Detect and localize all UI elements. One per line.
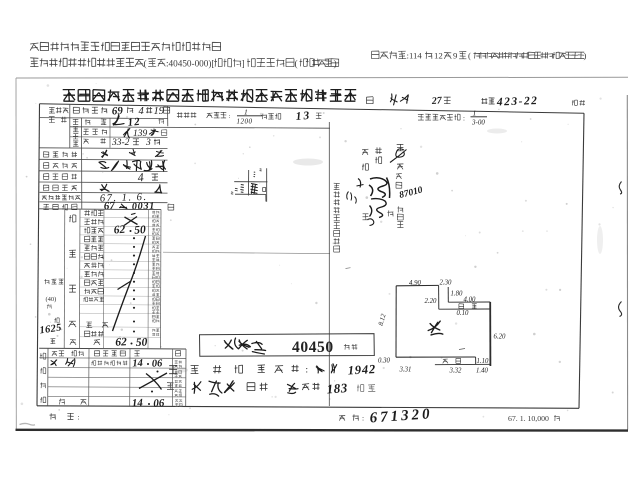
svg-text::: : xyxy=(362,414,364,423)
svg-text:14: 14 xyxy=(132,397,144,410)
svg-text:1.40: 1.40 xyxy=(476,368,488,375)
svg-text:62: 62 xyxy=(113,224,126,237)
svg-text:13: 13 xyxy=(295,110,311,123)
svg-text:4.00: 4.00 xyxy=(464,296,476,303)
svg-text::: : xyxy=(306,365,309,375)
svg-text:0031: 0031 xyxy=(132,201,156,213)
svg-text::: : xyxy=(463,114,465,122)
svg-text::114: :114 xyxy=(407,50,423,60)
svg-text:9: 9 xyxy=(453,50,458,60)
svg-text:(: ( xyxy=(468,50,471,60)
svg-text:1: 1 xyxy=(473,109,477,118)
svg-text:33-2: 33-2 xyxy=(111,138,130,148)
svg-text::: : xyxy=(78,413,80,422)
svg-text:1.10: 1.10 xyxy=(477,358,489,365)
svg-text:1: 1 xyxy=(244,108,248,117)
svg-text:69: 69 xyxy=(112,105,124,118)
svg-text:0.10: 0.10 xyxy=(457,310,469,317)
svg-text:4.90: 4.90 xyxy=(409,280,421,287)
svg-text:12: 12 xyxy=(127,116,141,129)
svg-text:(: ( xyxy=(144,59,147,70)
svg-text:2.20: 2.20 xyxy=(425,298,437,305)
svg-text:06: 06 xyxy=(153,397,165,410)
svg-text:1942: 1942 xyxy=(347,362,376,377)
svg-text:): ) xyxy=(584,50,587,60)
svg-text:423-22: 423-22 xyxy=(496,95,539,108)
svg-text:183: 183 xyxy=(326,380,348,396)
svg-text:3-00: 3-00 xyxy=(471,119,485,127)
svg-text:0.30: 0.30 xyxy=(378,358,390,365)
svg-text:1200: 1200 xyxy=(237,118,253,126)
svg-text:06: 06 xyxy=(152,358,164,370)
svg-text::40450-000)[: :40450-000)[ xyxy=(166,58,214,68)
svg-text:3.31: 3.31 xyxy=(399,367,412,374)
svg-text:50: 50 xyxy=(134,224,147,237)
svg-text:1.80: 1.80 xyxy=(451,291,463,298)
svg-text:3: 3 xyxy=(145,138,151,148)
svg-text:67: 67 xyxy=(104,200,116,213)
svg-text:3.32: 3.32 xyxy=(449,368,462,375)
svg-text:19: 19 xyxy=(154,106,165,117)
svg-text:2.30: 2.30 xyxy=(440,280,452,287)
svg-text:67. 1. 10,000: 67. 1. 10,000 xyxy=(508,414,549,423)
svg-text:(: ( xyxy=(295,59,298,70)
svg-text:40450: 40450 xyxy=(292,339,334,356)
svg-text:14: 14 xyxy=(132,358,143,370)
svg-text:]: ] xyxy=(242,58,245,68)
svg-text:12: 12 xyxy=(434,50,443,60)
svg-text::: : xyxy=(229,113,231,120)
svg-text:6.20: 6.20 xyxy=(494,334,506,341)
svg-text:50: 50 xyxy=(136,336,148,349)
svg-text:(40): (40) xyxy=(46,296,57,303)
svg-text:): ) xyxy=(334,59,337,70)
svg-text:62: 62 xyxy=(115,336,127,349)
svg-text:27: 27 xyxy=(430,95,443,107)
